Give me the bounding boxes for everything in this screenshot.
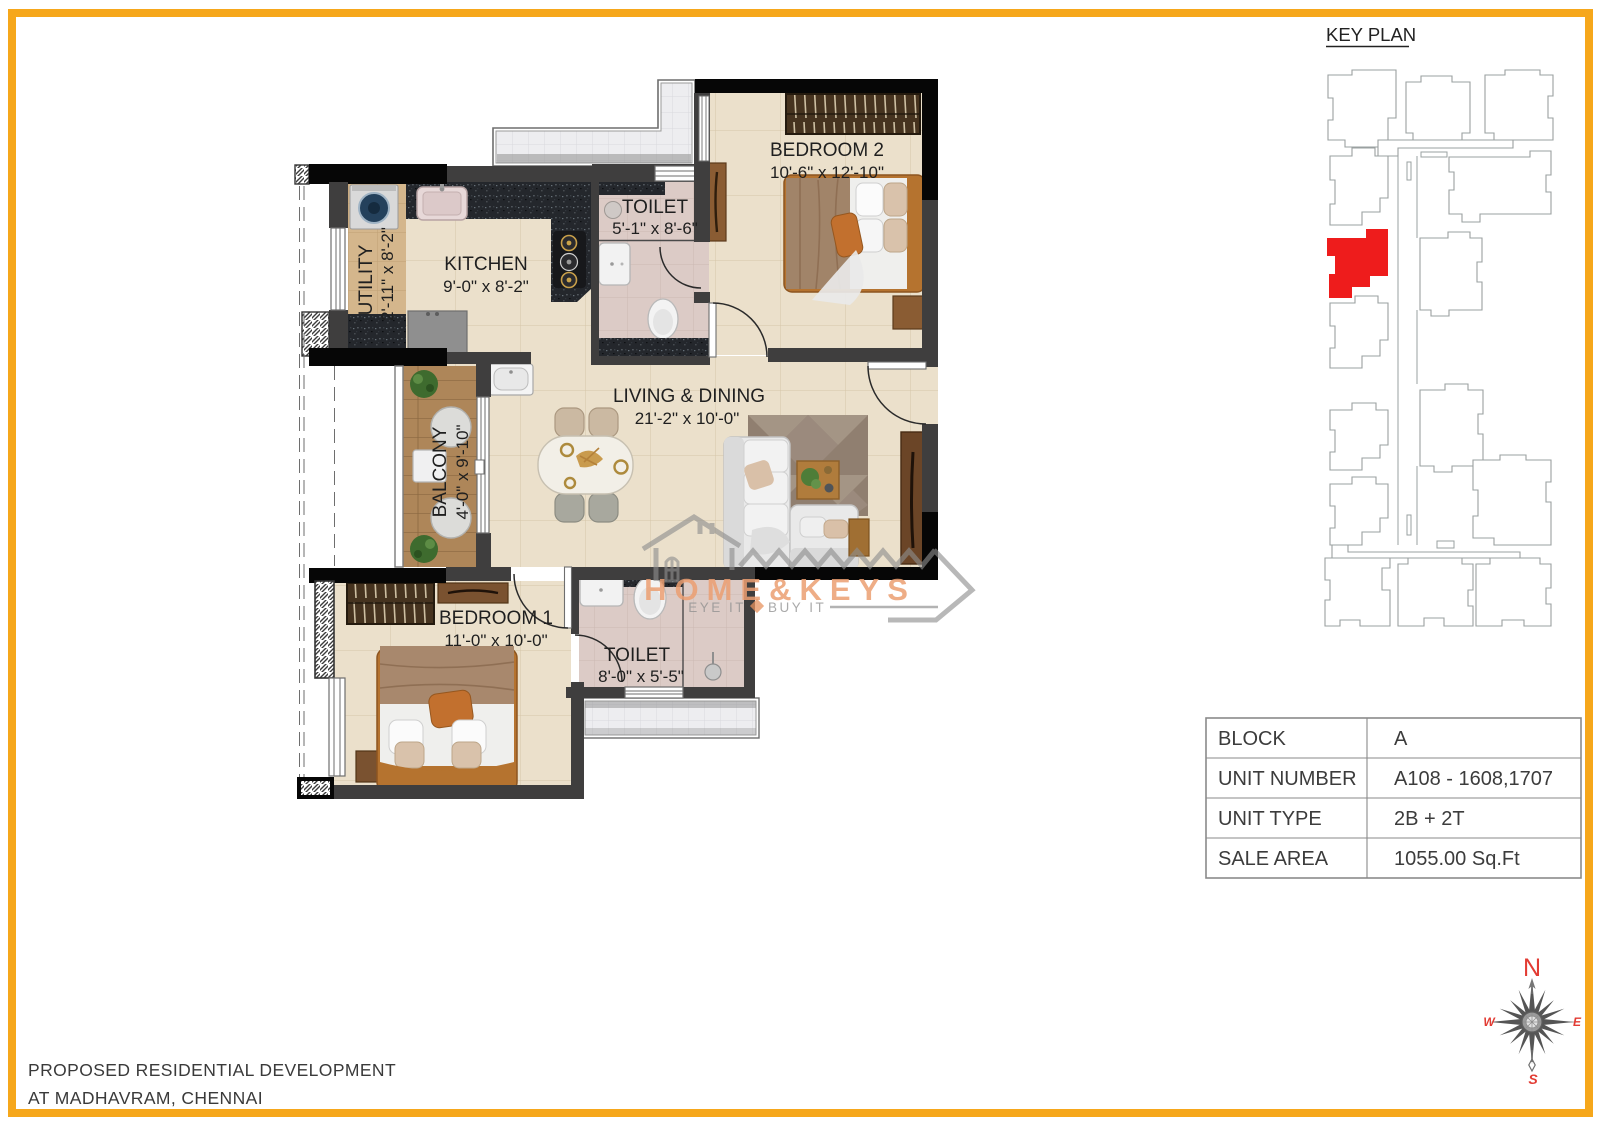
svg-text:BLOCK: BLOCK (1218, 728, 1286, 750)
svg-text:4'-0" x 9'-10": 4'-0" x 9'-10" (453, 424, 472, 519)
svg-text:TOILET: TOILET (622, 197, 689, 218)
svg-text:2'-11" x 8'-2": 2'-11" x 8'-2" (378, 227, 397, 321)
svg-text:BEDROOM 1: BEDROOM 1 (439, 608, 553, 629)
svg-text:A: A (1394, 728, 1408, 750)
svg-text:9'-0" x 8'-2": 9'-0" x 8'-2" (443, 277, 529, 296)
svg-text:10'-6" x 12'-10": 10'-6" x 12'-10" (770, 163, 884, 182)
svg-text:W: W (1483, 1015, 1496, 1029)
svg-text:N: N (1523, 954, 1541, 982)
svg-text:LIVING & DINING: LIVING & DINING (613, 386, 765, 407)
svg-text:11'-0" x 10'-0": 11'-0" x 10'-0" (444, 631, 547, 650)
svg-text:S: S (1528, 1071, 1538, 1087)
svg-text:UNIT NUMBER: UNIT NUMBER (1218, 768, 1357, 790)
svg-text:21'-2" x 10'-0": 21'-2" x 10'-0" (635, 409, 740, 428)
svg-text:SALE AREA: SALE AREA (1218, 848, 1329, 870)
svg-text:8'-0" x 5'-5": 8'-0" x 5'-5" (598, 667, 684, 686)
svg-text:2B + 2T: 2B + 2T (1394, 808, 1465, 830)
svg-text:BEDROOM 2: BEDROOM 2 (770, 140, 884, 161)
svg-text:5'-1" x 8'-6": 5'-1" x 8'-6" (612, 219, 698, 238)
svg-text:AT MADHAVRAM, CHENNAI: AT MADHAVRAM, CHENNAI (28, 1088, 263, 1108)
svg-text:1055.00 Sq.Ft: 1055.00 Sq.Ft (1394, 848, 1520, 870)
svg-text:E: E (1573, 1015, 1582, 1029)
svg-text:PROPOSED RESIDENTIAL DEVELOPME: PROPOSED RESIDENTIAL DEVELOPMENT (28, 1060, 396, 1080)
svg-text:BUY IT: BUY IT (768, 600, 826, 615)
svg-text:EYE IT: EYE IT (688, 600, 746, 615)
svg-text:UTILITY: UTILITY (356, 244, 377, 315)
svg-text:KITCHEN: KITCHEN (444, 254, 527, 275)
svg-text:TOILET: TOILET (604, 645, 671, 666)
svg-text:KEY PLAN: KEY PLAN (1326, 24, 1416, 45)
svg-text:BALCONY: BALCONY (430, 426, 451, 517)
svg-text:A108 - 1608,1707: A108 - 1608,1707 (1394, 768, 1553, 790)
svg-text:UNIT TYPE: UNIT TYPE (1218, 808, 1322, 830)
